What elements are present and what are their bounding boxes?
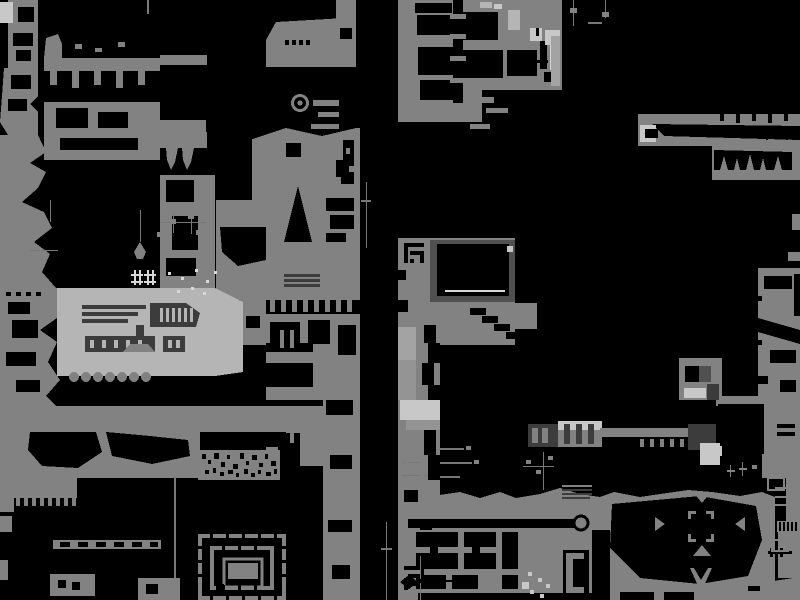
- hash-mark: [131, 281, 143, 283]
- block-slot: [102, 340, 106, 348]
- ladder-line: [284, 274, 320, 277]
- hash-mark: [144, 274, 156, 276]
- column-room: [308, 320, 330, 344]
- structure-room: [415, 3, 452, 13]
- shaft-peg: [450, 78, 466, 83]
- wire-tick: [361, 200, 371, 202]
- rubble: [213, 468, 216, 473]
- wedge-tick: [670, 439, 674, 447]
- wire: [30, 250, 58, 251]
- comb-tooth: [270, 300, 275, 312]
- structure-light: [508, 10, 520, 30]
- structure-room: [417, 15, 453, 35]
- slab-bar: [178, 308, 181, 322]
- column-room: [338, 325, 356, 355]
- column-light: [398, 327, 416, 360]
- rubble: [266, 472, 271, 476]
- slab-bar: [190, 308, 193, 322]
- blob-hole: [58, 580, 66, 588]
- window-dot: [26, 292, 31, 296]
- slab-east: [762, 396, 800, 478]
- frame-tick: [210, 534, 213, 540]
- cave-tab: [311, 124, 339, 129]
- wedge-tick: [660, 439, 664, 447]
- gate-notch: [398, 300, 408, 312]
- grid-join: [430, 547, 438, 553]
- platform-bar: [470, 124, 490, 129]
- ground-blob: [138, 578, 180, 600]
- wire-node: [420, 472, 425, 476]
- h-bracket: [766, 132, 768, 140]
- dash: [132, 542, 142, 547]
- speckle: [177, 290, 180, 293]
- dash: [60, 542, 70, 547]
- grid-room: [464, 553, 496, 569]
- comb-tick: [795, 522, 797, 531]
- rubble: [274, 469, 277, 474]
- gate-stair: [482, 316, 498, 323]
- mass-notch: [664, 592, 694, 600]
- wire: [160, 222, 206, 223]
- comb-tooth: [325, 300, 330, 312]
- coast-bay: [6, 352, 36, 366]
- rubble: [246, 461, 249, 465]
- rubble: [244, 469, 248, 474]
- left-column-light-block: [0, 2, 13, 23]
- facility-platform: [57, 288, 243, 376]
- rubble: [240, 453, 244, 459]
- col-pocket: [340, 28, 352, 39]
- cave-bracket-hole: [645, 129, 658, 138]
- roof-mark: [75, 44, 82, 49]
- speckle: [191, 287, 194, 290]
- cave-tick: [736, 114, 740, 123]
- grid-room: [464, 532, 496, 547]
- speckle: [203, 292, 206, 295]
- bracket-corner: [706, 539, 714, 542]
- roof-mark: [118, 42, 125, 47]
- machinery-stripe: [82, 319, 128, 323]
- mountain-west-sliver: [252, 130, 266, 200]
- table-leg: [306, 433, 310, 443]
- comb-tooth: [303, 300, 308, 312]
- greek-key: [410, 259, 414, 263]
- block-slot: [90, 340, 94, 348]
- rubble: [271, 461, 276, 466]
- cave-tab: [313, 100, 339, 106]
- table-leg: [290, 433, 294, 443]
- speckle: [195, 269, 198, 272]
- comb-tick: [783, 522, 785, 531]
- roof-post: [116, 71, 123, 88]
- slab-cavity: [718, 404, 764, 454]
- rubble: [251, 473, 255, 477]
- wire-node: [548, 456, 553, 460]
- room-mullion: [290, 330, 294, 348]
- nested-core: [228, 563, 258, 579]
- block-slot: [114, 340, 118, 348]
- roof-slab: [44, 58, 160, 71]
- wedge-tick: [650, 439, 654, 447]
- snake-channel: [428, 385, 440, 400]
- frame-tick: [254, 585, 257, 590]
- fringe-tooth: [24, 498, 28, 506]
- scallop: [129, 372, 139, 382]
- ladder-line: [284, 279, 320, 282]
- annex-slot: [540, 41, 547, 69]
- mid-ridge: [160, 55, 207, 65]
- wire-node: [170, 219, 176, 224]
- shoulder-pocket: [246, 316, 260, 328]
- frame-tick: [242, 534, 245, 540]
- speckle: [538, 578, 542, 582]
- structure-room: [463, 50, 503, 78]
- frame-tick: [226, 594, 229, 600]
- se-bracket: [775, 504, 786, 506]
- cavity: [16, 50, 31, 61]
- rubble: [228, 470, 233, 474]
- frame-tick: [242, 594, 245, 600]
- frame-tick: [258, 534, 261, 540]
- tower-room: [764, 276, 792, 289]
- tower-room: [780, 380, 796, 392]
- speckle: [181, 277, 184, 280]
- column-light: [398, 360, 416, 400]
- dot-row: [285, 40, 289, 45]
- comb-tooth: [281, 300, 286, 312]
- annex-slot: [536, 28, 539, 36]
- mountain-room: [330, 215, 354, 229]
- wire: [140, 210, 141, 242]
- branch-stub: [440, 462, 472, 464]
- floor-pocket: [60, 138, 138, 150]
- beam-stripe: [588, 424, 594, 444]
- hash-mark: [144, 281, 156, 283]
- louver: [562, 493, 592, 495]
- louver: [562, 485, 592, 487]
- wire-node: [570, 8, 577, 13]
- wire-node: [157, 232, 163, 237]
- frame-tick: [222, 546, 225, 551]
- tower-room: [770, 350, 796, 363]
- comb-tick: [787, 522, 789, 531]
- scallop: [69, 372, 79, 382]
- wire: [50, 200, 51, 222]
- se-column: [786, 470, 800, 522]
- h-bracket: [786, 132, 788, 140]
- greek-key: [410, 251, 424, 255]
- mid-shelf: [160, 120, 207, 148]
- wire-tick: [381, 548, 392, 550]
- frame-tick: [238, 585, 241, 590]
- mid-box-dark: [707, 384, 719, 400]
- fringe-tooth: [56, 498, 60, 506]
- roof-post: [94, 71, 101, 85]
- corridor: [408, 519, 574, 528]
- wire: [386, 522, 387, 600]
- game-map-viewport: [0, 0, 800, 600]
- gate-stair: [494, 324, 510, 331]
- grid-room: [416, 532, 458, 547]
- wedge-tick: [640, 439, 644, 447]
- rubble: [258, 470, 261, 474]
- slab-bar: [160, 308, 163, 322]
- mountain-room: [326, 198, 354, 211]
- frame-tick: [280, 546, 286, 549]
- speckle: [206, 280, 209, 283]
- coast-bay: [8, 302, 30, 314]
- gate-stair: [470, 308, 486, 315]
- rubble: [233, 464, 238, 469]
- comb-tooth: [347, 300, 352, 312]
- blob-hole: [72, 582, 80, 590]
- room-mullion: [280, 330, 284, 348]
- speckle: [522, 582, 529, 589]
- frame-tick: [258, 594, 261, 600]
- gate-overhang: [515, 303, 537, 329]
- arrow-chamber: [610, 496, 762, 584]
- annex-slot: [544, 72, 552, 82]
- game-map-svg: [0, 0, 800, 600]
- snake-channel: [428, 343, 440, 363]
- platform-bar: [468, 97, 494, 103]
- grid-join: [472, 547, 480, 553]
- tower-room: [794, 274, 800, 316]
- comb-tooth: [314, 300, 319, 312]
- dash: [150, 542, 158, 547]
- slab-bar: [166, 308, 169, 322]
- fringe-band: [14, 498, 80, 512]
- frame-tick: [226, 534, 229, 540]
- frame-tick: [198, 546, 204, 549]
- gate-underline: [445, 290, 505, 292]
- block-slot: [176, 340, 180, 348]
- frame-tick: [238, 546, 241, 551]
- rubble: [259, 463, 263, 467]
- speckle: [214, 271, 217, 274]
- speckle: [528, 572, 532, 576]
- h-bracket: [766, 136, 788, 138]
- gate-notch: [398, 270, 406, 280]
- c-structure: [566, 553, 584, 559]
- bracket-corner: [688, 511, 691, 519]
- cavity: [18, 7, 34, 22]
- rubble: [202, 454, 206, 459]
- spear-shaft: [418, 579, 442, 583]
- beam-stripe: [564, 424, 570, 444]
- coast-bay: [16, 380, 40, 392]
- cave-tick: [784, 114, 788, 121]
- mountain-pocket: [286, 143, 301, 157]
- slab-window: [777, 424, 795, 428]
- wire-node: [536, 470, 541, 474]
- tower-tick: [758, 340, 762, 345]
- beam-bit: [532, 428, 538, 443]
- wire-node: [466, 446, 471, 450]
- blob-hole: [146, 584, 158, 594]
- shaft-peg: [450, 14, 466, 19]
- dot-row: [292, 40, 296, 45]
- wire: [366, 182, 367, 248]
- bracket-corner: [688, 539, 696, 542]
- mountain-pocket: [336, 160, 349, 177]
- wire-tick: [739, 468, 747, 470]
- gate-stair: [506, 332, 515, 339]
- fringe-tooth: [48, 498, 52, 506]
- east-ledge: [792, 214, 800, 230]
- snake-channel: [422, 363, 434, 385]
- beam-light-right: [700, 443, 720, 465]
- rubble: [205, 470, 209, 474]
- louver: [562, 497, 590, 499]
- slab-bar: [172, 308, 175, 322]
- rubble: [208, 460, 211, 464]
- frame-tick: [210, 594, 213, 600]
- gate-hall: [437, 244, 509, 296]
- comb-band: [266, 300, 360, 314]
- table-top: [286, 428, 314, 433]
- grid-shaft: [502, 532, 518, 569]
- comb-tick: [779, 522, 781, 531]
- beam-bit: [542, 428, 548, 443]
- structure-room: [507, 50, 537, 76]
- slab-bar: [184, 308, 187, 322]
- frame-tick: [198, 574, 204, 577]
- mass-gap: [592, 530, 610, 600]
- wire-node: [474, 460, 479, 464]
- comb-tooth: [292, 300, 297, 312]
- fringe-tooth: [64, 498, 68, 506]
- dash: [96, 542, 106, 547]
- col-lower-pocket: [326, 400, 353, 415]
- shaft-peg: [450, 34, 466, 39]
- speckle: [546, 584, 550, 588]
- wire-tick: [727, 470, 735, 472]
- pocket-dot: [346, 148, 350, 154]
- rubble: [227, 455, 230, 459]
- mid-box-dark: [699, 366, 711, 382]
- structure-room: [418, 47, 453, 75]
- grid-room: [416, 553, 458, 569]
- scallop: [105, 372, 115, 382]
- frame-opening: [216, 584, 224, 590]
- machinery-stem: [136, 325, 144, 336]
- rubble: [221, 462, 225, 467]
- dot-row: [306, 40, 310, 45]
- comb-tick: [791, 522, 793, 531]
- cavity: [8, 99, 27, 111]
- frame-tick: [280, 560, 286, 563]
- rubble: [214, 453, 219, 459]
- mid-pocket: [166, 180, 194, 202]
- eye-mountain: [266, 18, 356, 67]
- fringe-tooth: [72, 498, 76, 506]
- structure-room: [420, 80, 455, 100]
- shaft-peg: [450, 56, 466, 61]
- comb-tooth: [336, 300, 341, 312]
- speckle: [540, 594, 544, 598]
- tower-tick: [758, 296, 762, 301]
- floor-slab: [266, 352, 313, 363]
- east-ledge: [788, 252, 800, 261]
- corner-pocket: [748, 586, 760, 591]
- wire-node: [188, 214, 194, 219]
- under-room-cave: [266, 343, 313, 387]
- structure-room: [463, 12, 498, 40]
- beam-stripe: [576, 424, 582, 444]
- rubble: [252, 455, 257, 460]
- scallop: [81, 372, 91, 382]
- cave-tick: [752, 114, 756, 121]
- slab-window: [777, 432, 795, 436]
- wire-node: [602, 12, 609, 17]
- window-dot: [6, 292, 11, 296]
- block-slot: [168, 340, 172, 348]
- wire: [523, 466, 554, 467]
- machinery-stripe: [82, 305, 146, 309]
- mountain-room: [326, 233, 346, 242]
- frame-tick: [274, 534, 277, 540]
- annex-slot: [534, 60, 548, 63]
- scallop: [117, 372, 127, 382]
- wedge-tick: [680, 439, 684, 447]
- branch-stub: [440, 448, 464, 450]
- window-dot: [16, 292, 21, 296]
- annex-inner: [551, 36, 560, 86]
- dash: [78, 542, 88, 547]
- speckle: [168, 272, 171, 275]
- rubble: [236, 473, 239, 477]
- structure-light: [494, 4, 502, 9]
- gate-corner-light: [507, 246, 513, 252]
- cave-tab: [318, 112, 339, 117]
- cave-tick: [768, 114, 772, 123]
- column-light: [406, 420, 440, 430]
- floor-pocket: [56, 108, 88, 128]
- speckle: [530, 590, 534, 594]
- platform-bar: [486, 108, 508, 113]
- machinery-stripe: [82, 312, 138, 316]
- frame-tick: [198, 560, 204, 563]
- structure-light: [480, 2, 492, 8]
- ladder-line: [284, 284, 320, 287]
- column-light-block: [400, 400, 440, 420]
- coast-bay: [12, 320, 38, 338]
- spear-shaft: [442, 580, 468, 582]
- roof-post: [138, 71, 145, 85]
- edge-bit: [0, 516, 12, 532]
- beam: [600, 428, 692, 437]
- tower-room: [758, 376, 768, 384]
- scallop: [141, 372, 151, 382]
- cave-tick: [720, 114, 724, 121]
- frame-tick: [274, 594, 277, 600]
- col-lower-pocket: [330, 455, 352, 469]
- snake-channel: [424, 430, 436, 455]
- col-lower-pocket: [332, 565, 350, 579]
- bracket-corner: [711, 511, 714, 519]
- wire: [420, 556, 421, 600]
- edge-bit: [0, 560, 8, 580]
- roof-post: [72, 71, 79, 88]
- branch-stub: [440, 476, 460, 478]
- floor-pocket: [98, 112, 128, 128]
- wire-node: [526, 460, 531, 464]
- wire: [147, 0, 149, 14]
- cavity: [13, 33, 33, 46]
- roof-post: [50, 71, 57, 85]
- fringe-tooth: [40, 498, 44, 506]
